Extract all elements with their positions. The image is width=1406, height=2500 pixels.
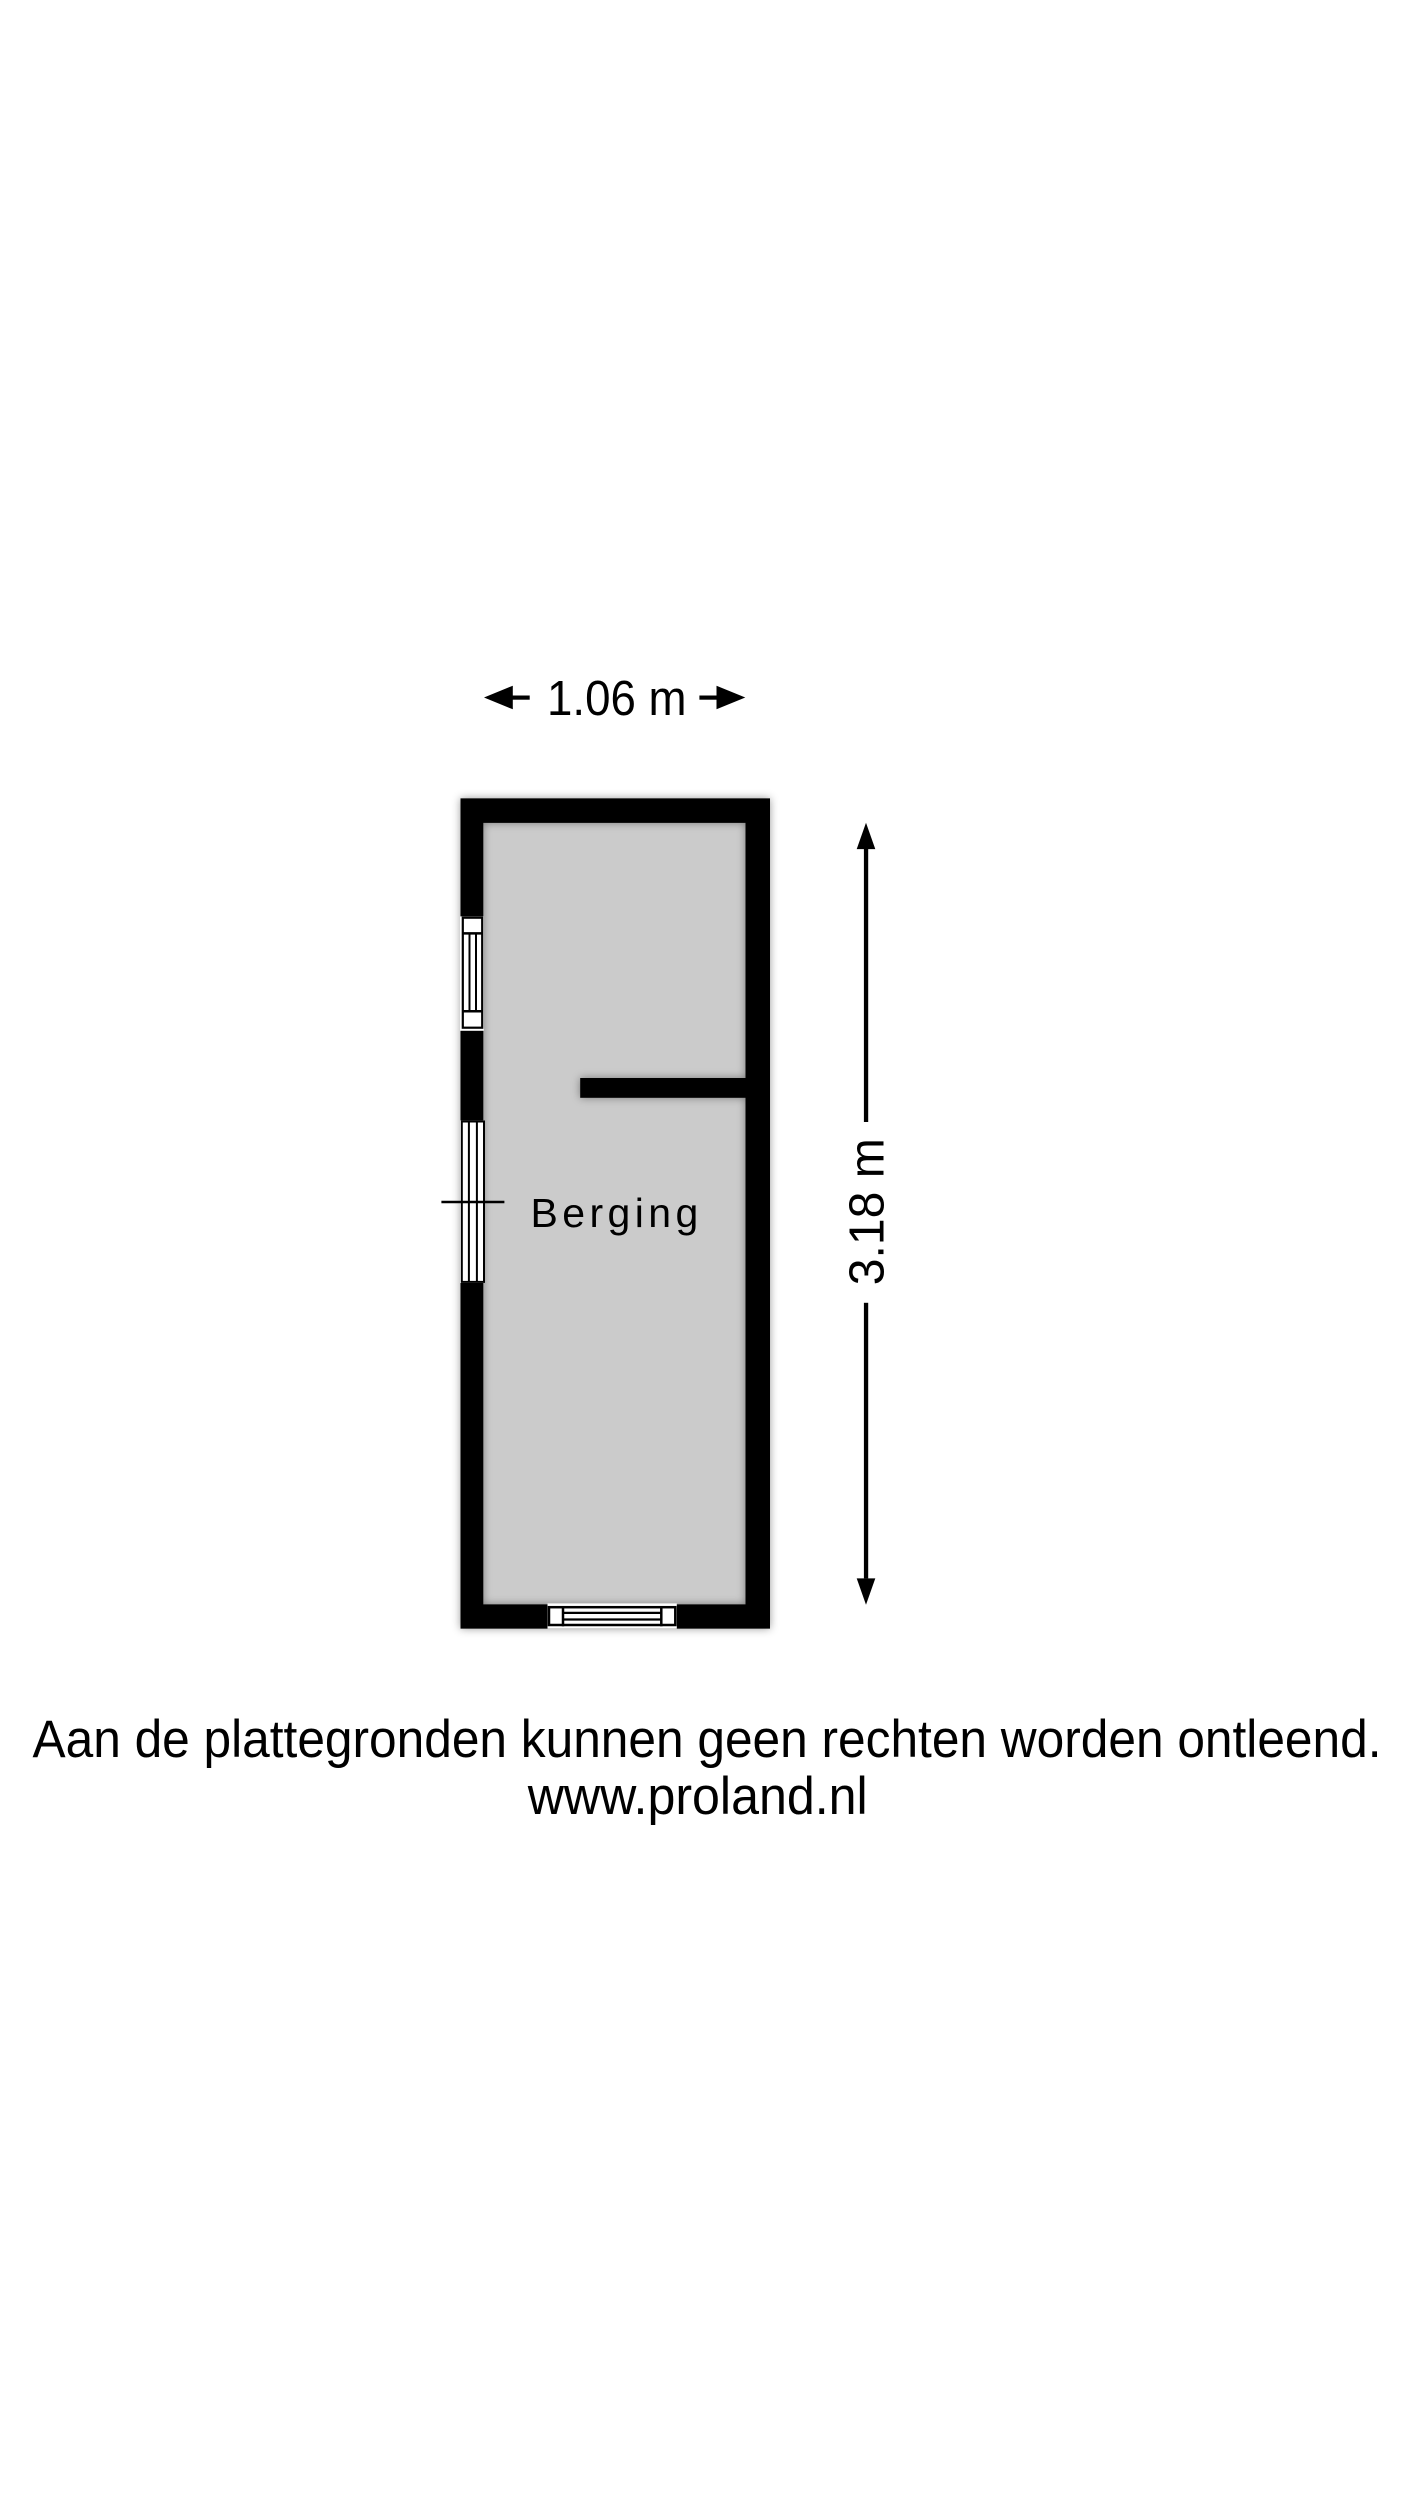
svg-text:3.18 m: 3.18 m [840,1138,895,1285]
svg-text:www.proland.nl: www.proland.nl [527,1768,868,1826]
svg-text:1.06 m: 1.06 m [547,671,687,726]
svg-text:Aan de plattegronden kunnen ge: Aan de plattegronden kunnen geen rechten… [33,1711,1382,1769]
svg-text:Berging: Berging [531,1190,702,1236]
